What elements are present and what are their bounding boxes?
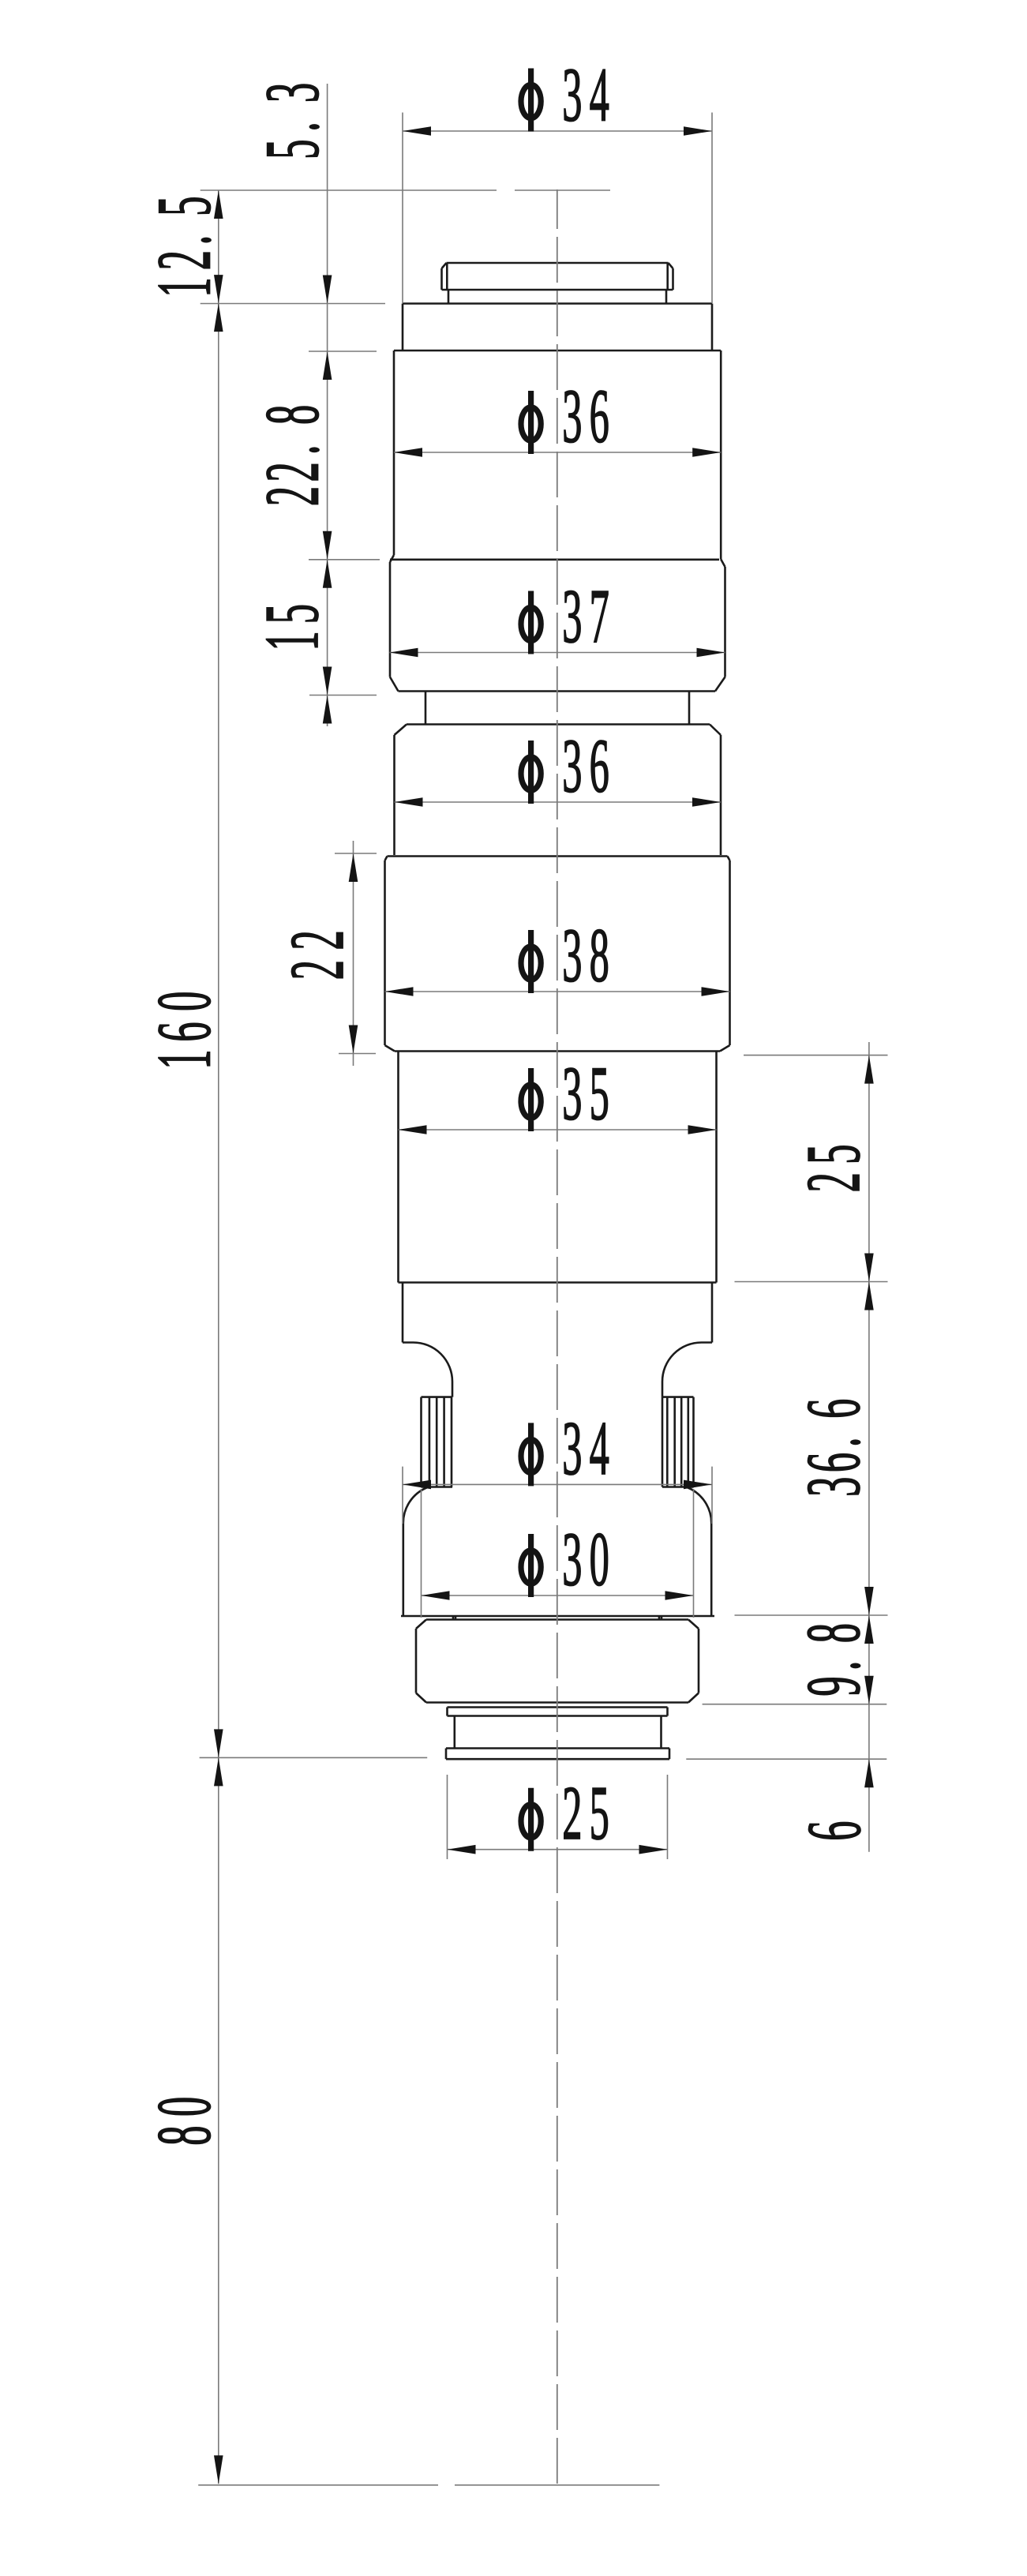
- svg-text:8: 8: [141, 2126, 227, 2146]
- svg-text:5: 5: [141, 196, 227, 216]
- svg-text:3: 3: [562, 573, 582, 658]
- svg-text:6: 6: [590, 373, 609, 459]
- svg-text:6: 6: [791, 1821, 876, 1841]
- svg-text:9: 9: [790, 1676, 875, 1696]
- svg-text:8: 8: [790, 1623, 875, 1643]
- svg-text:1: 1: [141, 1049, 227, 1069]
- svg-text:3: 3: [790, 1477, 875, 1497]
- svg-text:5: 5: [590, 1771, 609, 1856]
- svg-text:4: 4: [590, 1405, 609, 1490]
- svg-text:3: 3: [249, 83, 335, 103]
- svg-text:5: 5: [790, 1145, 875, 1164]
- svg-text:8: 8: [249, 405, 335, 425]
- svg-text:1: 1: [249, 631, 335, 651]
- svg-text:3: 3: [562, 913, 582, 998]
- svg-text:.: .: [790, 1661, 875, 1671]
- svg-text:3: 3: [562, 1517, 582, 1602]
- svg-text:0: 0: [141, 2097, 227, 2117]
- svg-text:3: 3: [562, 1051, 582, 1136]
- svg-text:6: 6: [141, 1022, 227, 1041]
- svg-text:5: 5: [249, 604, 335, 624]
- svg-text:2: 2: [249, 462, 335, 482]
- svg-text:.: .: [249, 444, 335, 455]
- svg-text:6: 6: [790, 1453, 875, 1472]
- svg-text:2: 2: [249, 486, 335, 506]
- svg-text:3: 3: [562, 52, 582, 137]
- svg-text:0: 0: [590, 1517, 609, 1602]
- svg-text:4: 4: [590, 52, 609, 137]
- svg-text:2: 2: [141, 250, 227, 270]
- svg-text:.: .: [790, 1437, 875, 1447]
- svg-text:2: 2: [274, 960, 359, 980]
- svg-text:2: 2: [274, 930, 359, 950]
- svg-text:5: 5: [249, 140, 335, 159]
- svg-text:.: .: [141, 235, 227, 246]
- svg-text:6: 6: [790, 1399, 875, 1419]
- svg-text:8: 8: [590, 913, 609, 998]
- svg-text:.: .: [249, 122, 335, 132]
- svg-text:1: 1: [141, 277, 227, 297]
- svg-text:3: 3: [562, 373, 582, 459]
- svg-text:2: 2: [562, 1771, 582, 1856]
- svg-text:3: 3: [562, 723, 582, 808]
- svg-text:3: 3: [562, 1405, 582, 1490]
- svg-text:0: 0: [141, 992, 227, 1011]
- svg-text:2: 2: [790, 1172, 875, 1192]
- svg-text:7: 7: [590, 573, 609, 658]
- svg-text:5: 5: [590, 1051, 609, 1136]
- svg-text:6: 6: [590, 723, 609, 808]
